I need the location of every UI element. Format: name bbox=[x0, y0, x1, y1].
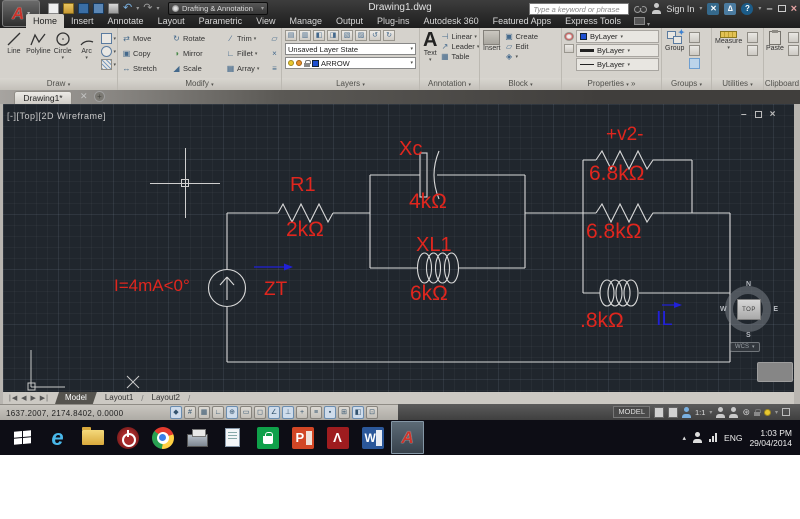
hatch-button[interactable]: ▾ bbox=[101, 59, 116, 70]
annotation-scale-value[interactable]: 1:1 bbox=[695, 408, 705, 417]
isolate-objects-icon[interactable] bbox=[764, 409, 771, 416]
selection-cycling-toggle[interactable]: ◧ bbox=[352, 406, 364, 419]
adobe-reader-button[interactable]: Λ bbox=[321, 421, 354, 454]
explode-button[interactable]: × bbox=[270, 46, 281, 61]
current-source bbox=[209, 270, 246, 307]
layer-match-icon[interactable]: ▥ bbox=[299, 30, 311, 41]
scale-button[interactable]: ◢Scale bbox=[172, 61, 226, 76]
new-drawing-icon[interactable] bbox=[48, 3, 59, 14]
lineweight-icon bbox=[580, 49, 594, 52]
fillet-icon: ∟ bbox=[226, 49, 235, 58]
annotation-scale-icon bbox=[682, 407, 691, 418]
drawing-canvas[interactable]: [-][Top][2D Wireframe] – × bbox=[3, 104, 794, 392]
chevron-down-icon: ▾ bbox=[626, 82, 629, 88]
tab-layout1[interactable]: Layout1 bbox=[97, 392, 141, 404]
explode-icon: × bbox=[270, 49, 279, 58]
panel-draw: Line Polyline Circle ▾ Arc ▾ bbox=[0, 28, 118, 90]
tab-layout[interactable]: Layout bbox=[151, 14, 192, 28]
chevron-down-icon: ▾ bbox=[362, 82, 365, 88]
infer-constraints-toggle[interactable]: ◆ bbox=[170, 406, 182, 419]
close-button[interactable]: × bbox=[791, 4, 797, 14]
tab-layout2[interactable]: Layout2 bbox=[144, 392, 188, 404]
edit-block-button[interactable]: ▱Edit bbox=[505, 42, 539, 51]
tab-plugins[interactable]: Plug-ins bbox=[370, 14, 417, 28]
erase-button[interactable]: ▱ bbox=[270, 31, 281, 46]
arc-button[interactable]: Arc ▾ bbox=[76, 30, 98, 78]
coordinate-readout[interactable]: 1637.2007, 2174.8402, 0.0000 bbox=[6, 409, 123, 418]
chevron-down-icon: ▾ bbox=[410, 46, 413, 52]
rotate-button[interactable]: ↻Rotate bbox=[172, 31, 226, 46]
navigation-bar-button[interactable] bbox=[757, 362, 793, 382]
power-icon bbox=[117, 427, 139, 449]
lineweight-dropdown[interactable]: ByLayer▾ bbox=[576, 44, 659, 57]
label-xc-value[interactable]: 4kΩ bbox=[409, 190, 447, 214]
snap-mode-toggle[interactable]: # bbox=[184, 406, 196, 419]
object-color-dropdown[interactable]: ByLayer▾ bbox=[576, 30, 659, 43]
lock-icon bbox=[304, 60, 310, 67]
panel-label-properties[interactable]: Properties ▾ » bbox=[562, 78, 661, 90]
measure-icon bbox=[720, 31, 737, 38]
linetype-dropdown[interactable]: ByLayer▾ bbox=[576, 58, 659, 71]
toolbar-lock-icon[interactable] bbox=[754, 409, 760, 416]
windows-taskbar: e P Λ W A ▴ ENG 1:03 PM 29/04/2014 bbox=[0, 420, 800, 455]
undo-caret-icon[interactable]: ▾ bbox=[136, 5, 139, 12]
text-button[interactable]: A Text ▾ bbox=[423, 30, 437, 63]
id-point-icon[interactable] bbox=[747, 45, 758, 56]
autocad-icon: A bbox=[401, 428, 413, 448]
object-snap-tracking-toggle[interactable]: ∠ bbox=[268, 406, 280, 419]
chevron-down-icon: ▾ bbox=[752, 344, 755, 350]
panel-layers: ▤ ▥ ◧ ◨ ▧ ▨ ↺ ↻ Unsaved Layer State ▾ bbox=[282, 28, 420, 90]
group-selection-icon[interactable] bbox=[689, 58, 700, 69]
store-bag-icon bbox=[257, 427, 279, 449]
panel-label-modify[interactable]: Modify ▾ bbox=[118, 78, 281, 90]
trim-button[interactable]: ∕Trim▾ bbox=[226, 31, 270, 46]
status-menu-caret-icon[interactable]: ▾ bbox=[775, 409, 778, 416]
label-xl1[interactable]: XL1 bbox=[416, 234, 452, 257]
label-r3-value[interactable]: 6.8kΩ bbox=[586, 220, 641, 244]
create-block-icon: ▣ bbox=[505, 32, 514, 41]
windows-logo-icon bbox=[14, 430, 31, 444]
circle-button[interactable]: Circle ▾ bbox=[52, 30, 74, 78]
document-icon bbox=[225, 428, 240, 447]
tab-manage[interactable]: Manage bbox=[282, 14, 329, 28]
time: 1:03 PM bbox=[749, 428, 792, 438]
zt-arrow bbox=[254, 264, 293, 271]
panel-label-annotation[interactable]: Annotation ▾ bbox=[420, 78, 479, 90]
layer-thaw-icon bbox=[296, 60, 302, 66]
clock[interactable]: 1:03 PM 29/04/2014 bbox=[749, 428, 792, 448]
label-xl1-value[interactable]: 6kΩ bbox=[410, 282, 448, 306]
windows-store-button[interactable] bbox=[251, 421, 284, 454]
adobe-icon: Λ bbox=[327, 427, 349, 449]
undo-icon[interactable]: ↶ bbox=[123, 3, 132, 14]
layer-undo-icon[interactable]: ↺ bbox=[369, 30, 381, 41]
internet-explorer-button[interactable]: e bbox=[41, 421, 74, 454]
stretch-icon: ↔ bbox=[122, 64, 131, 73]
chrome-icon bbox=[152, 427, 174, 449]
layout-tab-bar: |◀ ◀ ▶ ▶| Model Layout1 / Layout2 / bbox=[3, 392, 794, 404]
tab-express-tools[interactable]: Express Tools bbox=[558, 14, 628, 28]
layer-redo-icon[interactable]: ↻ bbox=[383, 30, 395, 41]
trim-icon: ∕ bbox=[226, 34, 235, 43]
chevron-down-icon: ▾ bbox=[68, 82, 71, 88]
panel-label-block[interactable]: Block ▾ bbox=[480, 78, 561, 90]
line-button[interactable]: Line bbox=[3, 30, 25, 78]
table-icon: ▦ bbox=[440, 52, 449, 61]
minimize-button[interactable]: – bbox=[766, 4, 772, 14]
label-r1[interactable]: R1 bbox=[290, 174, 316, 197]
autoscale-icon[interactable] bbox=[729, 407, 738, 418]
tab-output[interactable]: Output bbox=[329, 14, 370, 28]
language-indicator[interactable]: ENG bbox=[724, 433, 742, 443]
insert-block-button[interactable]: Insert bbox=[483, 30, 501, 61]
quick-properties-toggle[interactable]: ⊞ bbox=[338, 406, 350, 419]
chevron-down-icon: ▾ bbox=[530, 82, 533, 88]
ellipse-icon bbox=[101, 46, 112, 57]
group-button[interactable]: ✦ Group bbox=[665, 31, 684, 69]
chevron-down-icon: ▾ bbox=[468, 82, 471, 88]
scale-icon: ◢ bbox=[172, 64, 181, 73]
move-icon: ⇄ bbox=[122, 34, 131, 43]
tab-home[interactable]: Home bbox=[26, 14, 64, 28]
paste-button[interactable]: Paste bbox=[766, 31, 784, 56]
arc-icon bbox=[78, 30, 96, 48]
linear-dimension-button[interactable]: ⊣Linear▾ bbox=[440, 32, 479, 41]
label-current-source[interactable]: I=4mA<0° bbox=[114, 276, 190, 296]
layer-prev-icon[interactable]: ◧ bbox=[313, 30, 325, 41]
screen-margin bbox=[0, 455, 800, 519]
autodesk360-icon[interactable]: ∆ bbox=[724, 3, 736, 15]
match-properties-icon[interactable] bbox=[564, 32, 574, 41]
measure-button[interactable]: Measure ▾ bbox=[715, 31, 742, 56]
rectangle-icon bbox=[101, 33, 112, 44]
search-binoculars-icon[interactable] bbox=[634, 3, 647, 14]
viewcube-south[interactable]: S bbox=[746, 332, 751, 339]
printer-icon bbox=[187, 434, 208, 447]
table-button[interactable]: ▦Table bbox=[440, 52, 479, 61]
new-tab-icon[interactable]: + bbox=[94, 91, 105, 102]
quick-access-toolbar: ↶ ▾ ↷ ▾ bbox=[48, 2, 159, 14]
viewcube-east[interactable]: E bbox=[773, 306, 778, 313]
group-edit-icon[interactable] bbox=[689, 45, 700, 56]
word-icon: W bbox=[362, 427, 384, 449]
window-frame-right[interactable] bbox=[794, 104, 800, 404]
ribbon-tab-bar: Home Insert Annotate Layout Parametric V… bbox=[26, 14, 650, 28]
tab-nav-icons[interactable]: |◀ ◀ ▶ ▶| bbox=[3, 394, 55, 402]
label-zt[interactable]: ZT bbox=[264, 279, 287, 301]
redo-icon[interactable]: ↷ bbox=[143, 3, 152, 14]
panel-label-layers[interactable]: Layers ▾ bbox=[282, 78, 419, 90]
wcs-dropdown[interactable]: WCS ▾ bbox=[730, 342, 760, 352]
3d-object-snap-toggle[interactable]: ◻ bbox=[254, 406, 266, 419]
chevron-down-icon: ▾ bbox=[727, 45, 730, 51]
tab-insert[interactable]: Insert bbox=[64, 14, 101, 28]
file-explorer-button[interactable] bbox=[76, 421, 109, 454]
array-button[interactable]: ▦Array▾ bbox=[226, 61, 270, 76]
restore-button[interactable] bbox=[778, 5, 786, 12]
array-icon: ▦ bbox=[226, 64, 235, 73]
autocad-taskbar-button[interactable]: A bbox=[391, 421, 424, 454]
dynamic-input-toggle[interactable]: + bbox=[296, 406, 308, 419]
pickbox bbox=[181, 179, 189, 187]
layer-dropdown[interactable]: ARROW ▾ bbox=[285, 57, 416, 69]
offset-button[interactable]: ≡ bbox=[270, 61, 281, 76]
chevron-down-icon: ▾ bbox=[429, 57, 432, 63]
layer-color-swatch bbox=[312, 60, 319, 67]
panel-annotation: A Text ▾ ⊣Linear▾ ↗Leader▾ ▦Table Annota… bbox=[420, 28, 480, 90]
properties-list-icon[interactable] bbox=[564, 44, 574, 53]
copy-button[interactable]: ▣Copy bbox=[122, 46, 172, 61]
tab-featured-apps[interactable]: Featured Apps bbox=[486, 14, 559, 28]
text-icon: A bbox=[423, 30, 437, 50]
help-caret-icon[interactable]: ▾ bbox=[758, 5, 761, 12]
system-tray: ▴ ENG 1:03 PM 29/04/2014 bbox=[683, 428, 800, 448]
layer-isolate-icon[interactable]: ◨ bbox=[327, 30, 339, 41]
chevron-down-icon: ▾ bbox=[61, 55, 64, 61]
tray-expand-icon[interactable]: ▴ bbox=[683, 434, 687, 442]
layer-freeze-icon[interactable]: ▧ bbox=[341, 30, 353, 41]
panel-label-clipboard[interactable]: Clipboard bbox=[764, 78, 800, 90]
chevron-down-icon: ▾ bbox=[211, 82, 214, 88]
stretch-button[interactable]: ↔Stretch bbox=[122, 61, 172, 76]
layer-tools-row: ▤ ▥ ◧ ◨ ▧ ▨ ↺ ↻ bbox=[285, 30, 416, 41]
chevron-down-icon[interactable]: ▾ bbox=[699, 5, 702, 12]
label-l2-value[interactable]: .8kΩ bbox=[580, 309, 624, 333]
linear-dim-icon: ⊣ bbox=[440, 32, 449, 41]
powerpoint-button[interactable]: P bbox=[286, 421, 319, 454]
tray-app-icon[interactable] bbox=[693, 432, 702, 443]
gear-icon bbox=[172, 5, 179, 12]
polar-tracking-toggle[interactable]: ⊕ bbox=[226, 406, 238, 419]
autocad-window: A ▾ ↶ ▾ ↷ ▾ Drafting & Annotation ▾ Draw… bbox=[0, 0, 800, 519]
word-button[interactable]: W bbox=[356, 421, 389, 454]
layer-on-icon bbox=[288, 60, 294, 66]
status-bar: 1637.2007, 2174.8402, 0.0000 ◆ # ▦ ∟ ⊕ ▭… bbox=[0, 404, 800, 420]
sign-in-link[interactable]: Sign In bbox=[666, 4, 694, 14]
shutdown-button[interactable] bbox=[111, 421, 144, 454]
annotation-visibility-icon[interactable] bbox=[716, 407, 725, 418]
file-tab-drawing1[interactable]: Drawing1* bbox=[14, 91, 72, 104]
mirror-button[interactable]: ◑Mirror bbox=[172, 46, 226, 61]
qat-caret-icon[interactable]: ▾ bbox=[156, 5, 159, 12]
annotation-monitor-toggle[interactable]: ⊡ bbox=[366, 406, 378, 419]
chevron-down-icon: ▾ bbox=[85, 55, 88, 61]
grid-display-toggle[interactable]: ▦ bbox=[198, 406, 210, 419]
viewcube-west[interactable]: W bbox=[720, 306, 727, 313]
hatch-icon bbox=[101, 59, 112, 70]
line-icon bbox=[5, 30, 23, 48]
save-as-icon[interactable] bbox=[93, 3, 104, 14]
panel-clipboard: Paste Clipboard bbox=[764, 28, 800, 90]
label-r1-value[interactable]: 2kΩ bbox=[286, 218, 324, 242]
status-toggles: ◆ # ▦ ∟ ⊕ ▭ ◻ ∠ ⊥ + ≡ ▪ ⊞ ◧ ⊡ bbox=[170, 406, 378, 419]
inductor-l2 bbox=[600, 280, 638, 306]
ie-icon: e bbox=[51, 427, 63, 449]
layer-state-dropdown[interactable]: Unsaved Layer State ▾ bbox=[285, 43, 416, 55]
ellipse-button[interactable]: ▾ bbox=[101, 46, 116, 57]
devices-button[interactable] bbox=[181, 421, 214, 454]
viewcube-top-face[interactable]: TOP bbox=[737, 299, 761, 320]
panel-expand-icon: » bbox=[631, 79, 635, 88]
clean-screen-icon[interactable] bbox=[782, 408, 790, 416]
panel-properties: ByLayer▾ ByLayer▾ ByLayer▾ Properties ▾ … bbox=[562, 28, 662, 90]
notepad-button[interactable] bbox=[216, 421, 249, 454]
open-icon[interactable] bbox=[63, 3, 74, 14]
lineweight-toggle[interactable]: ≡ bbox=[310, 406, 322, 419]
ribbon: Line Polyline Circle ▾ Arc ▾ bbox=[0, 28, 800, 90]
ucs-icon bbox=[28, 350, 139, 390]
date: 29/04/2014 bbox=[749, 438, 792, 448]
quick-view-drawings-icon[interactable] bbox=[668, 407, 678, 418]
chevron-down-icon: ▾ bbox=[410, 60, 413, 66]
panel-label-groups[interactable]: Groups ▾ bbox=[662, 78, 711, 90]
move-button[interactable]: ⇄Move bbox=[122, 31, 172, 46]
leader-icon: ↗ bbox=[440, 42, 449, 51]
label-xc[interactable]: Xc bbox=[399, 138, 422, 161]
chrome-button[interactable] bbox=[146, 421, 179, 454]
ortho-mode-toggle[interactable]: ∟ bbox=[212, 406, 224, 419]
plot-icon[interactable] bbox=[108, 3, 119, 14]
chevron-down-icon: ▾ bbox=[750, 82, 753, 88]
layer-off-icon[interactable]: ▨ bbox=[355, 30, 367, 41]
label-r2-value[interactable]: 6.8kΩ bbox=[589, 162, 644, 186]
paste-icon bbox=[769, 31, 781, 45]
tab-parametric[interactable]: Parametric bbox=[192, 14, 250, 28]
linetype-icon bbox=[580, 64, 594, 65]
block-attributes-button[interactable]: ◈▾ bbox=[505, 52, 539, 61]
powerpoint-icon: P bbox=[292, 427, 314, 449]
erase-icon: ▱ bbox=[270, 34, 279, 43]
workspace-label: Drafting & Annotation bbox=[182, 4, 253, 13]
leader-button[interactable]: ↗Leader▾ bbox=[440, 42, 479, 51]
polyline-button[interactable]: Polyline bbox=[27, 30, 50, 78]
panel-label-draw[interactable]: Draw ▾ bbox=[0, 78, 117, 90]
quick-calc-icon[interactable] bbox=[747, 32, 758, 43]
file-tab-bar: Drawing1* ✕ + bbox=[0, 90, 800, 104]
copy-clip-icon[interactable] bbox=[788, 45, 799, 56]
inductor-xl1 bbox=[418, 253, 459, 283]
transparency-toggle[interactable]: ▪ bbox=[324, 406, 336, 419]
chevron-down-icon: ▾ bbox=[261, 5, 264, 12]
rotate-icon: ↻ bbox=[172, 34, 181, 43]
cut-icon[interactable] bbox=[788, 32, 799, 43]
offset-icon: ≡ bbox=[270, 64, 279, 73]
tab-model[interactable]: Model bbox=[55, 392, 97, 404]
color-swatch bbox=[580, 33, 587, 40]
viewcube-north[interactable]: N bbox=[746, 281, 751, 288]
ungroup-icon[interactable] bbox=[689, 32, 700, 43]
model-space-button[interactable]: MODEL bbox=[613, 406, 650, 418]
save-icon[interactable] bbox=[78, 3, 89, 14]
search-input[interactable]: Type a keyword or phrase bbox=[529, 3, 629, 15]
label-v2[interactable]: +v2- bbox=[606, 124, 644, 146]
close-tab-icon[interactable]: ✕ bbox=[80, 91, 88, 102]
chevron-down-icon: ▾ bbox=[699, 82, 702, 88]
mirror-icon: ◑ bbox=[172, 49, 181, 58]
panel-label-utilities[interactable]: Utilities ▾ bbox=[712, 78, 763, 90]
insert-block-icon bbox=[483, 30, 500, 45]
tab-autodesk360[interactable]: Autodesk 360 bbox=[417, 14, 486, 28]
group-icon: ✦ bbox=[667, 31, 683, 45]
exchange-apps-icon[interactable]: ✕ bbox=[707, 3, 719, 15]
quick-view-layouts-icon[interactable] bbox=[654, 407, 664, 418]
fillet-button[interactable]: ∟Fillet▾ bbox=[226, 46, 270, 61]
autocad-logo-icon: A bbox=[12, 4, 24, 24]
scale-caret-icon[interactable]: ▾ bbox=[709, 409, 712, 416]
start-button[interactable] bbox=[6, 421, 39, 454]
tab-view[interactable]: View bbox=[249, 14, 282, 28]
user-icon bbox=[652, 3, 661, 14]
create-block-button[interactable]: ▣Create bbox=[505, 32, 539, 41]
label-il[interactable]: IL bbox=[656, 308, 673, 331]
tab-annotate[interactable]: Annotate bbox=[101, 14, 151, 28]
copy-icon: ▣ bbox=[122, 49, 131, 58]
help-icon[interactable]: ? bbox=[741, 3, 753, 15]
object-snap-toggle[interactable]: ▭ bbox=[240, 406, 252, 419]
workspace-switch-gear-icon[interactable]: ⊛ bbox=[742, 408, 750, 417]
polyline-icon bbox=[29, 30, 47, 48]
tab-divider: / bbox=[188, 394, 190, 403]
rectangle-button[interactable]: ▾ bbox=[101, 33, 116, 44]
dynamic-ucs-toggle[interactable]: ⊥ bbox=[282, 406, 294, 419]
panel-modify: ⇄Move ↻Rotate ∕Trim▾ ▱ ▣Copy ◑Mirror ∟Fi… bbox=[118, 28, 282, 90]
ribbon-display-icon[interactable] bbox=[634, 17, 645, 25]
edit-block-icon: ▱ bbox=[505, 42, 514, 51]
circle-icon bbox=[54, 30, 72, 48]
attributes-icon: ◈ bbox=[505, 52, 514, 61]
ribbon-display-caret-icon[interactable]: ▾ bbox=[647, 21, 650, 28]
panel-utilities: Measure ▾ Utilities ▾ bbox=[712, 28, 764, 90]
panel-block: Insert ▣Create ▱Edit ◈▾ Block ▾ bbox=[480, 28, 562, 90]
folder-icon bbox=[82, 430, 104, 445]
layer-properties-icon[interactable]: ▤ bbox=[285, 30, 297, 41]
network-icon[interactable] bbox=[709, 433, 717, 442]
panel-groups: ✦ Group Groups ▾ bbox=[662, 28, 712, 90]
viewcube[interactable]: N E S W TOP bbox=[721, 282, 777, 338]
